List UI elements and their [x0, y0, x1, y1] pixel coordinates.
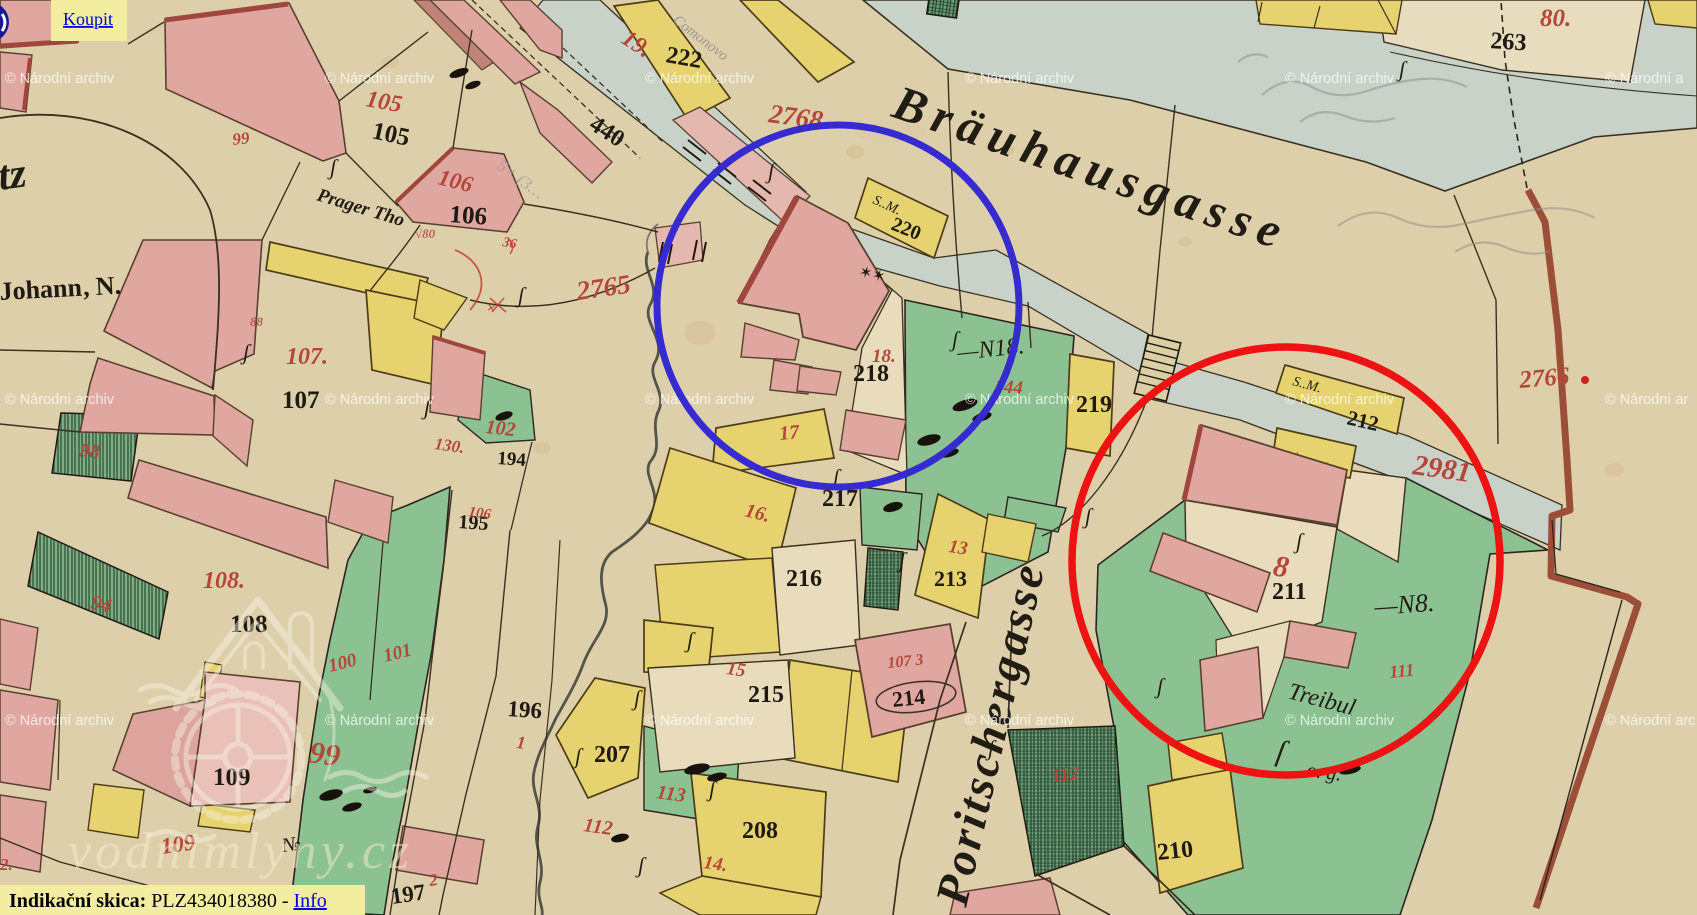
- svg-text:112: 112: [582, 814, 614, 840]
- svg-text:√80: √80: [415, 226, 436, 241]
- svg-text:99: 99: [231, 128, 250, 149]
- svg-text:vodnimlyny.cz: vodnimlyny.cz: [68, 823, 413, 880]
- svg-text:© Národní archiv: © Národní archiv: [325, 71, 435, 87]
- svg-text:196: 196: [507, 696, 543, 723]
- svg-text:88: 88: [250, 314, 264, 329]
- svg-text:210: 210: [1156, 836, 1195, 866]
- svg-text:214: 214: [891, 684, 926, 712]
- svg-text:102: 102: [484, 416, 516, 441]
- svg-text:2.: 2.: [0, 855, 13, 874]
- svg-text:© Národní archiv: © Národní archiv: [5, 392, 115, 408]
- svg-text:© Národní archiv: © Národní archiv: [965, 71, 1075, 87]
- svg-text:14.: 14.: [702, 852, 728, 876]
- svg-text:© Národní archiv: © Národní archiv: [645, 392, 755, 408]
- svg-text:18.: 18.: [872, 346, 896, 367]
- svg-text:208: 208: [742, 818, 778, 844]
- svg-text:263: 263: [1490, 28, 1528, 56]
- svg-text:© Národní archiv: © Národní archiv: [325, 392, 435, 408]
- svg-text:108.: 108.: [203, 568, 245, 594]
- svg-text:© Národní archiv: © Národní archiv: [1285, 713, 1395, 729]
- svg-text:213: 213: [934, 566, 967, 591]
- svg-text:207: 207: [594, 742, 630, 768]
- svg-text:36: 36: [500, 235, 517, 252]
- svg-text:80.: 80.: [1540, 5, 1571, 32]
- svg-text:98: 98: [78, 439, 101, 464]
- svg-text:17: 17: [778, 421, 801, 445]
- svg-text:© Národní archiv: © Národní archiv: [5, 71, 115, 87]
- svg-text:215: 215: [748, 682, 784, 708]
- svg-text:99: 99: [307, 734, 343, 773]
- svg-text:© Národní a: © Národní a: [1605, 71, 1684, 87]
- svg-text:—N8.: —N8.: [1372, 588, 1435, 621]
- svg-text:219: 219: [1076, 392, 1112, 418]
- svg-text:106: 106: [467, 504, 492, 523]
- svg-text:Indikační skica: PLZ434018380: Indikační skica: PLZ434018380 - Info: [9, 890, 327, 912]
- svg-text:106: 106: [449, 201, 488, 231]
- svg-text:© Národní ar: © Národní ar: [1605, 392, 1688, 408]
- svg-text:216: 216: [786, 566, 822, 592]
- svg-text:© Národní archiv: © Národní archiv: [965, 392, 1075, 408]
- svg-text:© Národní arc: © Národní arc: [1605, 713, 1695, 729]
- svg-text:13: 13: [947, 536, 969, 559]
- svg-text:© Národní archiv: © Národní archiv: [1285, 71, 1395, 87]
- svg-text:111: 111: [1388, 659, 1415, 682]
- svg-text:107: 107: [282, 387, 320, 414]
- svg-text:© Národní archiv: © Národní archiv: [5, 713, 115, 729]
- svg-text:113: 113: [655, 781, 687, 807]
- svg-text:© Národní archiv: © Národní archiv: [325, 713, 435, 729]
- svg-text:2766: 2766: [1517, 363, 1571, 394]
- svg-text:107.: 107.: [286, 344, 328, 370]
- svg-text:194: 194: [497, 448, 527, 471]
- svg-text:© Národní archiv: © Národní archiv: [1285, 392, 1395, 408]
- svg-text:112: 112: [1050, 763, 1080, 787]
- svg-text:© Národní archiv: © Národní archiv: [965, 713, 1075, 729]
- svg-text:197: 197: [389, 879, 427, 909]
- svg-text:© Národní archiv: © Národní archiv: [645, 713, 755, 729]
- svg-text:15: 15: [725, 658, 747, 682]
- svg-text:© Národní archiv: © Národní archiv: [645, 71, 755, 87]
- svg-text:Koupit: Koupit: [63, 9, 113, 29]
